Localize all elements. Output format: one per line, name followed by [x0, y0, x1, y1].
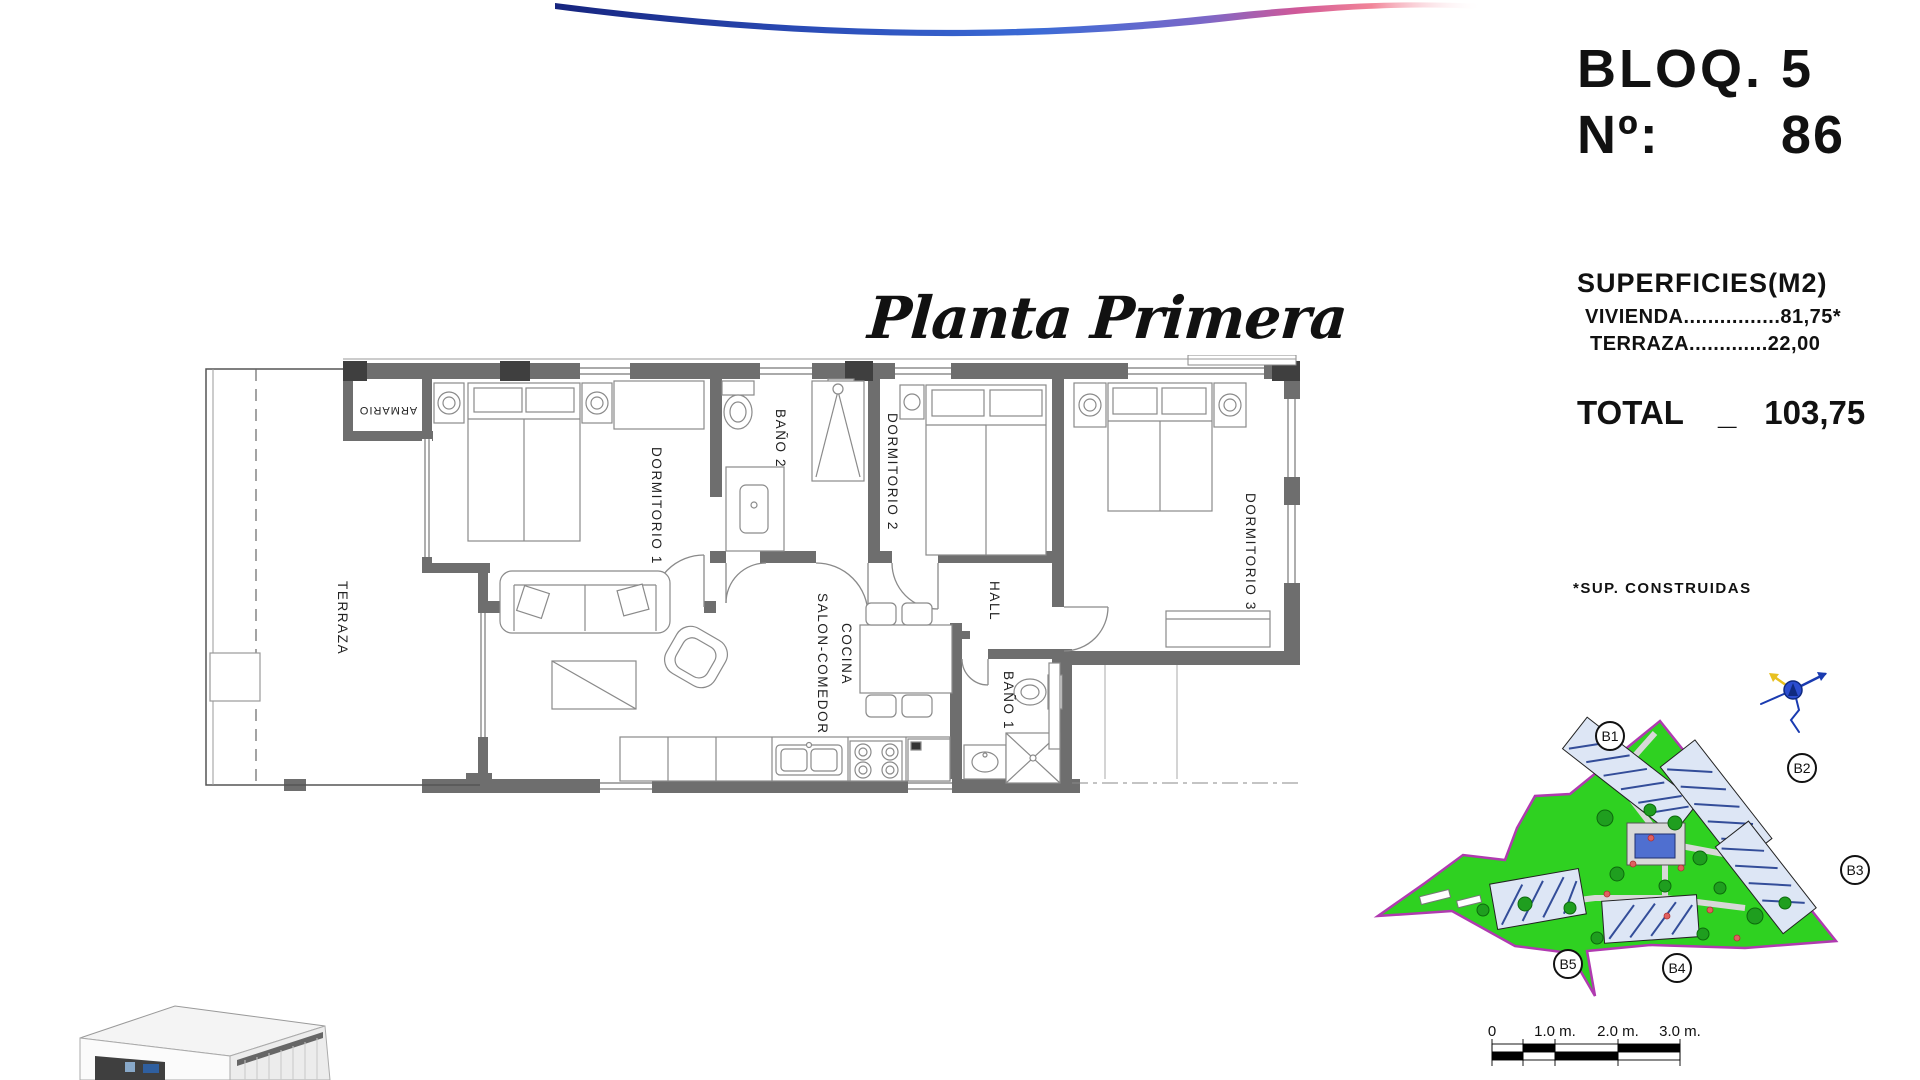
room-label-cocina: COCINA — [839, 623, 854, 685]
shower — [812, 381, 864, 481]
duct-shaft — [1049, 663, 1060, 749]
armchair — [659, 620, 733, 693]
scale-label-1m: 1.0 m. — [1534, 1023, 1576, 1040]
compass-icon — [1761, 672, 1827, 732]
nightstand — [900, 385, 924, 419]
surface-value: 22,00 — [1768, 333, 1821, 355]
room-label-salon-comedor: SALON-COMEDOR — [815, 593, 830, 735]
dining-table — [860, 603, 952, 717]
room-label-terraza: TERRAZA — [335, 581, 350, 655]
floor-plan: TERRAZA ARMARIO DORMITORIO 1 BAÑO 2 DORM… — [200, 355, 1300, 800]
block-title: BLOQ. 5 — [1577, 38, 1814, 100]
surface-label: TERRAZA — [1590, 333, 1689, 355]
scale-label-2m: 2.0 m. — [1597, 1023, 1639, 1040]
surface-row-terraza: TERRAZA.............22,00 — [1590, 333, 1820, 356]
double-bed — [468, 383, 580, 541]
unit-number-label: Nº: — [1577, 104, 1660, 166]
plan-title: Planta Primera — [866, 284, 1349, 352]
nightstand — [1214, 383, 1246, 427]
total-separator: _ — [1718, 394, 1736, 432]
nightstand — [582, 383, 612, 423]
room-label-hall: HALL — [987, 581, 1002, 621]
utility-closet — [726, 467, 784, 551]
furniture — [434, 379, 1270, 783]
slab-edge-lines — [1072, 665, 1300, 783]
parapet-outline — [1188, 355, 1296, 365]
toilet — [722, 381, 754, 429]
nightstand — [434, 383, 464, 423]
surface-value: 81,75* — [1780, 306, 1841, 328]
surfaces-title: SUPERFICIES(M2) — [1577, 268, 1828, 299]
bathroom-sink — [964, 745, 1006, 779]
brand-swoosh-decoration — [555, 0, 1485, 42]
nightstand — [1074, 383, 1106, 427]
unit-number-row: Nº: 86 — [1577, 104, 1845, 166]
surface-label: VIVIENDA — [1585, 306, 1683, 328]
room-label-bano-1: BAÑO 1 — [1001, 671, 1016, 730]
swoosh-path — [555, 2, 1483, 36]
brochure-page: BLOQ. 5 Nº: 86 SUPERFICIES(M2) VIVIENDA.… — [0, 0, 1920, 1080]
dot-leader: ............. — [1689, 333, 1768, 355]
double-bed — [1108, 383, 1212, 511]
unit-number-value: 86 — [1781, 104, 1845, 166]
building-render-thumbnail — [25, 998, 335, 1080]
block-badge-b1: B1 — [1601, 728, 1618, 744]
stove — [850, 741, 902, 781]
room-label-dormitorio-2: DORMITORIO 2 — [885, 413, 900, 531]
room-label-dormitorio-3: DORMITORIO 3 — [1243, 493, 1258, 611]
block-badge-b4: B4 — [1668, 960, 1685, 976]
dresser — [614, 381, 704, 429]
scale-bar-cells — [1492, 1039, 1680, 1066]
dot-leader: ................ — [1683, 306, 1780, 328]
room-label-dormitorio-1: DORMITORIO 1 — [649, 447, 664, 565]
room-label-armario: ARMARIO — [359, 404, 417, 416]
coffee-table — [552, 661, 636, 709]
surface-row-vivienda: VIVIENDA................81,75* — [1585, 306, 1841, 329]
total-label: TOTAL — [1577, 394, 1684, 432]
surfaces-footnote: *SUP. CONSTRUIDAS — [1573, 580, 1752, 597]
fridge — [908, 739, 950, 781]
scale-bar: 0 1.0 m. 2.0 m. 3.0 m. — [1480, 1022, 1710, 1080]
scale-label-0: 0 — [1488, 1023, 1496, 1040]
kitchen-sink — [776, 743, 842, 776]
total-value: 103,75 — [1764, 394, 1865, 432]
block-badge-b2: B2 — [1793, 760, 1810, 776]
sofa — [500, 571, 670, 633]
dresser — [1166, 611, 1270, 647]
terrace-planter — [210, 653, 260, 701]
site-plan: B1 B2 B3 B4 B5 — [1365, 648, 1910, 1013]
block-badge-b5: B5 — [1559, 956, 1576, 972]
building-b4 — [1602, 895, 1700, 944]
block-badge-b3: B3 — [1846, 862, 1863, 878]
room-label-bano-2: BAÑO 2 — [773, 409, 788, 468]
total-row: TOTAL _ 103,75 — [1577, 394, 1877, 432]
double-bed — [926, 385, 1046, 555]
scale-label-3m: 3.0 m. — [1659, 1023, 1701, 1040]
